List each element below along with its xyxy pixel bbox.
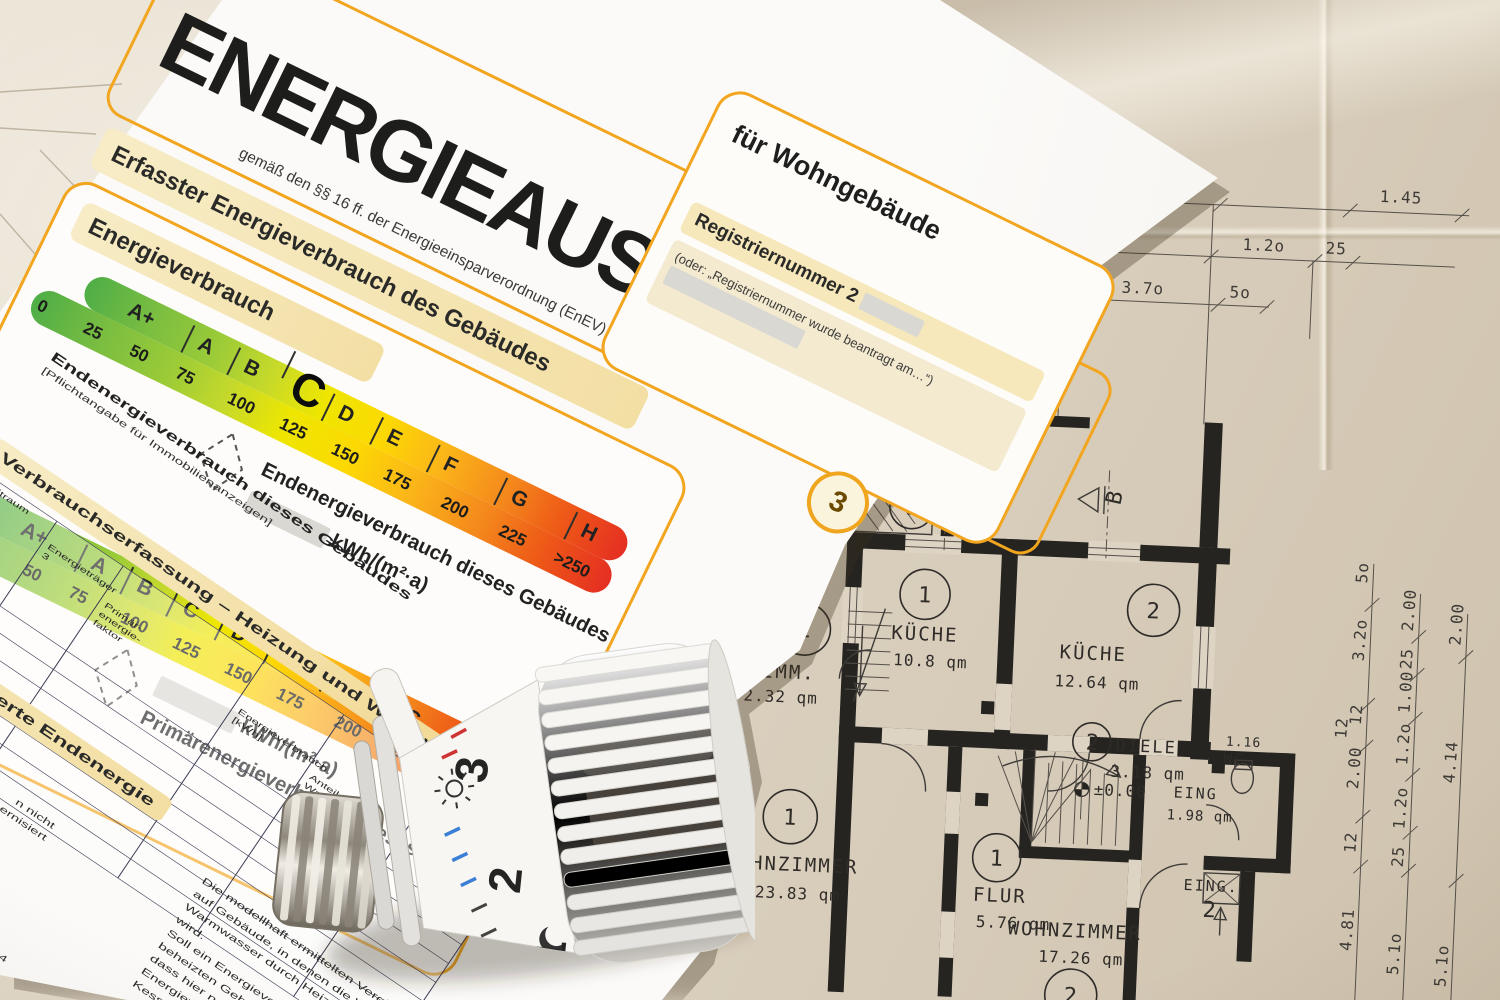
dim-label: 12: [1331, 716, 1352, 739]
dim-label: 5.1o: [1430, 944, 1452, 988]
dim-label: 12: [1340, 831, 1361, 854]
scale-number: 25: [80, 318, 106, 344]
photo-scene: 1o.72 1.45 5.72 1.2o 25 5o 3.7o 5o: [0, 0, 1500, 1000]
dim-label: 1.2o: [1389, 786, 1411, 830]
room-area: 17.26 qm: [1038, 947, 1124, 970]
dim-label: 5o: [1352, 561, 1373, 584]
scale-number: 175: [380, 465, 414, 495]
scale-number: 200: [438, 493, 472, 523]
dim-label: 4.81: [1336, 908, 1358, 952]
scale-number: 75: [172, 363, 198, 389]
dim-label: 3.2o: [1349, 618, 1371, 662]
dim-label: 3.7o: [1121, 278, 1164, 299]
room-area: 3.18 qm: [1110, 762, 1185, 784]
redacted-box: [858, 292, 925, 337]
dim-label: 1.2o: [1242, 235, 1285, 256]
room-area: 1.16: [1226, 735, 1262, 752]
room-area: 1.98 qm: [1166, 807, 1233, 826]
room-name: DIELE: [1115, 736, 1177, 759]
scale-number: 50: [126, 341, 152, 367]
scale-number: >250: [550, 548, 593, 583]
scale-number: 150: [328, 439, 362, 469]
scale-letter: D: [334, 401, 358, 429]
dim-label: 1.45: [1379, 187, 1422, 208]
scale-number: 0: [34, 296, 51, 318]
scale-letter: A: [194, 332, 218, 360]
room-circle: 2: [1202, 898, 1216, 924]
dim-label: 1.00: [1394, 670, 1416, 714]
scale-letter: A+: [124, 298, 159, 332]
dim-label: 25: [1388, 845, 1409, 868]
scale-letter: B: [240, 355, 264, 383]
scale-letter: H: [577, 519, 601, 547]
dim-label: 25: [1396, 647, 1417, 670]
dimension-chain-right: 5o 3.2o 12 12 2.00 12 4.81 2.00 25 1.00 …: [1319, 561, 1476, 1000]
room-name: WC.: [1223, 750, 1257, 769]
scale-letter: G: [507, 485, 532, 514]
dial-number-2: 2: [478, 865, 532, 896]
scale-letter: F: [439, 452, 461, 479]
dim-label: 5.1o: [1383, 932, 1405, 976]
scale-number: 125: [276, 414, 310, 444]
scale-number: 225: [495, 521, 529, 551]
scale-letter: E: [383, 425, 406, 453]
dim-label: 5o: [1229, 282, 1251, 302]
dim-label: 2.00: [1398, 588, 1420, 632]
dim-label: 2.00: [1343, 746, 1365, 790]
room-circle: 2: [1063, 984, 1077, 1000]
level-label: ±0.00: [1093, 780, 1147, 801]
dim-label: 25: [1325, 239, 1347, 259]
page-number: 4: [0, 952, 9, 965]
radiator-thermostat: 3 2 1: [235, 595, 755, 1000]
dim-label: 2.00: [1445, 602, 1467, 646]
scale-number: 100: [224, 389, 258, 419]
room-name: EING.: [1183, 876, 1239, 896]
dial-number-3: 3: [444, 754, 498, 785]
dim-label: 1.2o: [1392, 722, 1414, 766]
dim-label: 4.14: [1439, 740, 1461, 784]
room-name: EING: [1173, 783, 1218, 803]
